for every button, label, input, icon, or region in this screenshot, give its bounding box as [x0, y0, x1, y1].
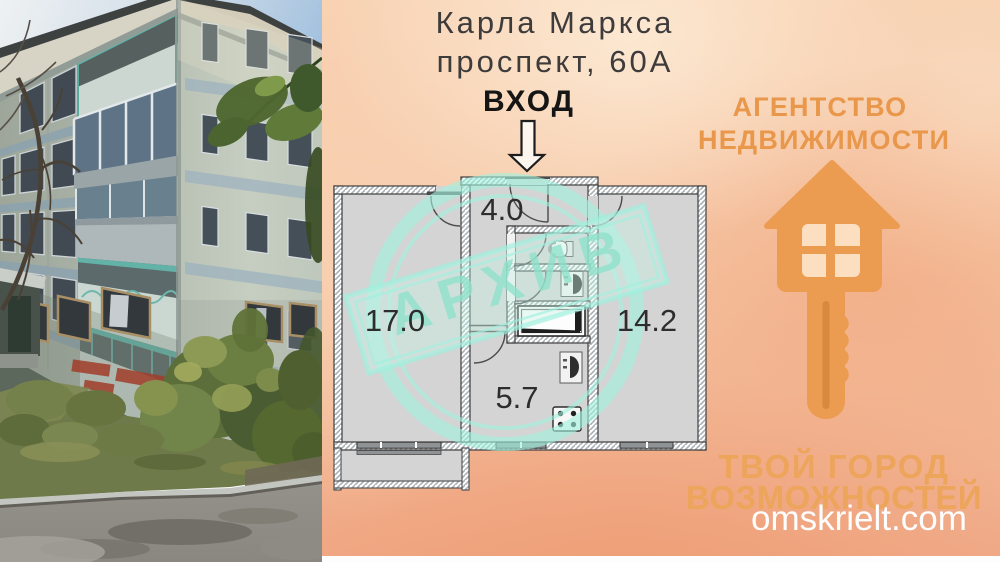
svg-text:17.0: 17.0: [365, 303, 425, 338]
svg-text:14.2: 14.2: [617, 303, 677, 338]
svg-text:4.0: 4.0: [480, 192, 523, 227]
svg-text:5.7: 5.7: [495, 380, 538, 415]
